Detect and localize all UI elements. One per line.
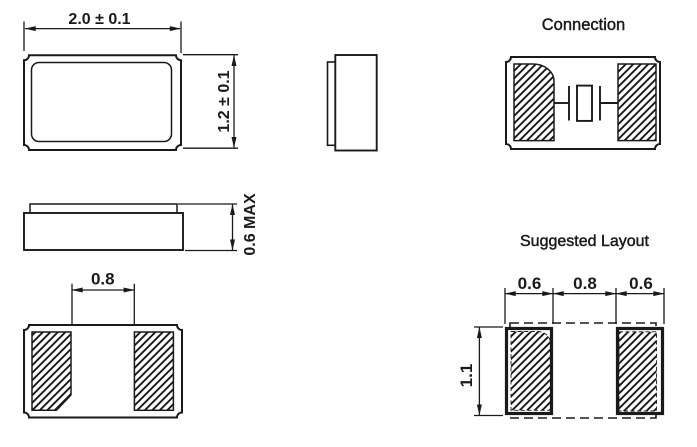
svg-text:Connection: Connection <box>542 16 625 34</box>
svg-text:1.1: 1.1 <box>457 364 476 388</box>
svg-text:Suggested Layout: Suggested Layout <box>520 233 650 250</box>
svg-text:0.6: 0.6 <box>629 274 653 293</box>
svg-text:0.6 MAX: 0.6 MAX <box>242 193 259 256</box>
svg-text:2.0 ± 0.1: 2.0 ± 0.1 <box>68 11 130 28</box>
svg-text:0.6: 0.6 <box>518 274 542 293</box>
svg-text:0.8: 0.8 <box>573 274 597 293</box>
svg-text:0.8: 0.8 <box>91 269 115 288</box>
svg-text:1.2 ± 0.1: 1.2 ± 0.1 <box>216 70 233 132</box>
